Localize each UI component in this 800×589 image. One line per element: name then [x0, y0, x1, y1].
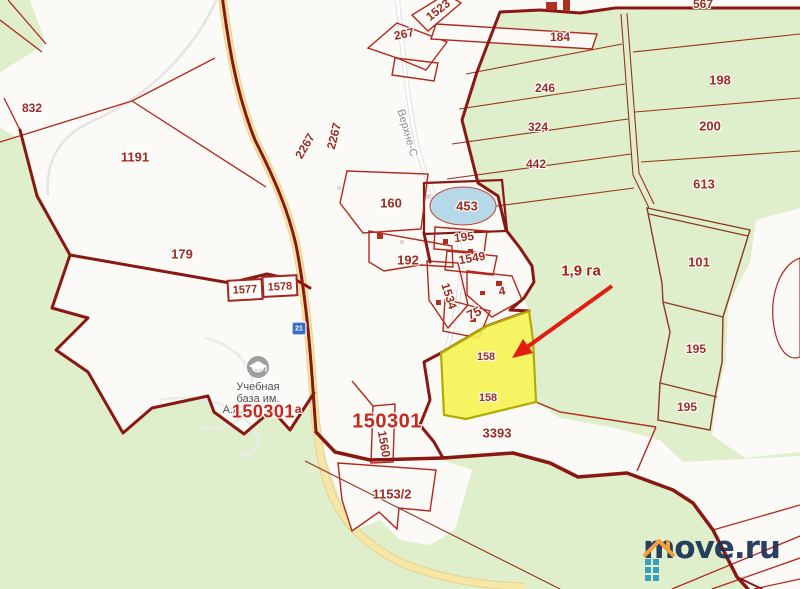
parcel-label-567: 567	[693, 0, 713, 11]
quarter-label-left: 150301ᵃ	[232, 402, 302, 423]
parcel-label-442: 442	[526, 157, 546, 171]
road-sign-number: 21	[295, 326, 303, 333]
highlight-area-label: 1,9 га	[561, 263, 601, 280]
parcel-label-195-right2: 195	[677, 400, 697, 414]
parcel-label-198: 198	[709, 73, 731, 88]
parcel-label-101: 101	[688, 255, 710, 270]
parcel-label-613: 613	[693, 177, 715, 192]
parcel-label-453: 453	[456, 199, 478, 214]
poi-name-line1: Учебная	[236, 381, 279, 393]
parcel-label-195-right1: 195	[686, 342, 706, 356]
parcel-label-200: 200	[699, 119, 721, 134]
parcel-label-246: 246	[535, 81, 555, 95]
parcel-label-192: 192	[397, 253, 419, 268]
parcel-label-1191: 1191	[121, 150, 149, 165]
parcel-label-160: 160	[380, 196, 402, 211]
parcel-label-195-center: 195	[453, 229, 475, 245]
parcel-label-832: 832	[22, 101, 42, 115]
move-ru-logo-icon	[641, 533, 677, 583]
quarter-label-center: 150301	[352, 411, 422, 434]
move-ru-watermark[interactable]: move.ru	[641, 533, 780, 566]
parcel-label-1578: 1578	[267, 280, 292, 293]
parcel-label-1153-2: 1153/2	[372, 487, 411, 502]
highlight-number-top: 158	[477, 351, 495, 363]
parcel-label-1577: 1577	[232, 283, 257, 296]
parcel-label-179: 179	[171, 247, 193, 262]
education-icon[interactable]	[247, 356, 269, 378]
parcel-label-324: 324	[528, 120, 548, 134]
parcel-label-184: 184	[550, 30, 570, 44]
highlight-number-bottom: 158	[479, 392, 497, 404]
parcel-label-3393: 3393	[483, 426, 512, 441]
cadastral-map[interactable]: 832 1191 179 1523 267 2267 2267 184 567 …	[0, 0, 800, 589]
